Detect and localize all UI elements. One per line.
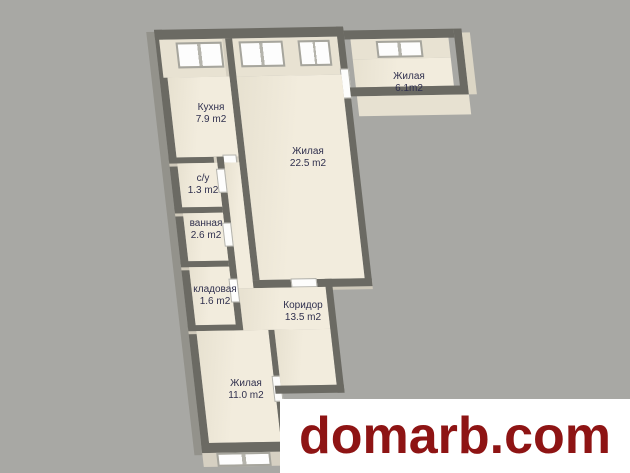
room-label-corridor: Коридор 13.5 m2 xyxy=(283,300,323,324)
window xyxy=(297,40,332,67)
window xyxy=(376,40,424,58)
room-area: 1.3 m2 xyxy=(188,185,219,197)
room-label-bathroom: ванная 2.6 m2 xyxy=(190,218,223,242)
room-label-living-small: Жилая 6.1m2 xyxy=(393,71,425,95)
room-name: с/у xyxy=(188,173,219,185)
wall-outer-face xyxy=(357,94,471,116)
watermark-banner: domarb.com xyxy=(280,399,630,473)
room-name: Жилая xyxy=(290,146,326,158)
watermark-text: domarb.com xyxy=(299,406,611,466)
room-area: 11.0 m2 xyxy=(228,390,263,402)
room-label-living-bottom: Жилая 11.0 m2 xyxy=(228,378,263,402)
room-name: ванная xyxy=(190,218,223,230)
room-area: 1.6 m2 xyxy=(193,296,236,308)
door xyxy=(291,278,318,287)
room-floor-corridor xyxy=(274,329,336,386)
window xyxy=(175,42,224,69)
room-label-wc: с/у 1.3 m2 xyxy=(188,173,219,197)
screenshot-root: Кухня 7.9 m2 Жилая 22.5 m2 Жилая 6.1m2 с… xyxy=(0,0,630,473)
window xyxy=(216,452,272,467)
room-name: Коридор xyxy=(283,300,323,312)
wall xyxy=(275,385,345,394)
room-area: 22.5 m2 xyxy=(290,158,326,170)
room-name: кладовая xyxy=(193,284,236,296)
room-area: 7.9 m2 xyxy=(196,114,227,126)
room-name: Жилая xyxy=(393,71,425,83)
room-label-kitchen: Кухня 7.9 m2 xyxy=(196,102,227,126)
room-name: Кухня xyxy=(196,102,227,114)
room-area: 2.6 m2 xyxy=(190,230,223,242)
room-name: Жилая xyxy=(228,378,263,390)
window xyxy=(238,41,285,68)
room-area: 6.1m2 xyxy=(393,83,425,95)
room-area: 13.5 m2 xyxy=(283,312,323,324)
room-label-living-large: Жилая 22.5 m2 xyxy=(290,146,326,170)
room-label-storage: кладовая 1.6 m2 xyxy=(193,284,236,308)
